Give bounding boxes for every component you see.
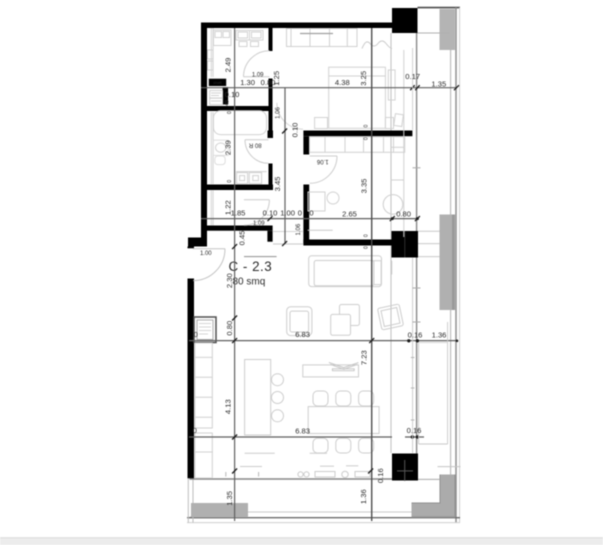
- svg-text:0: 0: [193, 426, 197, 435]
- svg-text:0.16: 0.16: [407, 426, 422, 435]
- svg-text:0.17: 0.17: [405, 72, 420, 81]
- svg-text:0.16: 0.16: [408, 331, 423, 340]
- svg-text:2.30: 2.30: [225, 273, 234, 288]
- svg-text:3.35: 3.35: [359, 179, 368, 194]
- svg-text:1.06: 1.06: [316, 158, 328, 164]
- svg-text:1.35: 1.35: [225, 491, 234, 506]
- svg-text:0.80: 0.80: [225, 321, 234, 336]
- svg-text:1.06: 1.06: [296, 223, 302, 235]
- svg-text:1.36: 1.36: [432, 331, 447, 340]
- svg-text:1.36: 1.36: [359, 489, 368, 504]
- svg-text:4.13: 4.13: [224, 399, 233, 414]
- svg-text:0: 0: [363, 234, 369, 237]
- svg-text:0: 0: [363, 124, 369, 127]
- svg-text:6.83: 6.83: [295, 427, 310, 436]
- svg-text:2.65: 2.65: [342, 210, 357, 219]
- svg-text:1.09: 1.09: [253, 221, 265, 227]
- svg-text:0: 0: [227, 180, 233, 183]
- svg-text:0: 0: [363, 246, 369, 249]
- svg-text:0: 0: [363, 137, 369, 140]
- svg-text:0: 0: [227, 111, 233, 114]
- svg-text:7.23: 7.23: [360, 350, 369, 365]
- svg-text:0.45: 0.45: [238, 231, 247, 246]
- svg-text:2.39: 2.39: [224, 140, 233, 155]
- svg-text:2.49: 2.49: [224, 58, 233, 73]
- svg-text:1.00: 1.00: [200, 251, 212, 257]
- svg-text:0.80: 0.80: [396, 210, 411, 219]
- svg-text:3.25: 3.25: [359, 71, 368, 86]
- svg-text:6.83: 6.83: [295, 330, 310, 339]
- svg-text:80 R: 80 R: [248, 142, 261, 148]
- svg-text:0.10: 0.10: [263, 209, 278, 218]
- svg-text:49: 49: [225, 100, 231, 106]
- svg-text:0.16: 0.16: [376, 468, 385, 483]
- svg-text:1.09: 1.09: [252, 72, 264, 78]
- svg-text:1.85: 1.85: [231, 209, 246, 218]
- svg-text:1.06: 1.06: [275, 107, 281, 119]
- svg-text:1.30: 1.30: [240, 78, 255, 87]
- svg-text:0.10: 0.10: [291, 123, 300, 138]
- svg-text:0: 0: [194, 330, 198, 339]
- svg-text:3.45: 3.45: [273, 177, 282, 192]
- svg-text:80 smq: 80 smq: [233, 277, 266, 288]
- svg-text:1.35: 1.35: [431, 80, 446, 89]
- svg-text:0: 0: [298, 209, 302, 218]
- svg-text:0: 0: [309, 209, 313, 218]
- svg-text:1.00: 1.00: [280, 209, 295, 218]
- svg-text:4.38: 4.38: [335, 78, 350, 87]
- svg-text:0.10: 0.10: [225, 90, 240, 99]
- svg-text:1.22: 1.22: [224, 200, 233, 215]
- svg-text:shaft: shaft: [213, 81, 222, 85]
- svg-text:1.25: 1.25: [272, 71, 281, 86]
